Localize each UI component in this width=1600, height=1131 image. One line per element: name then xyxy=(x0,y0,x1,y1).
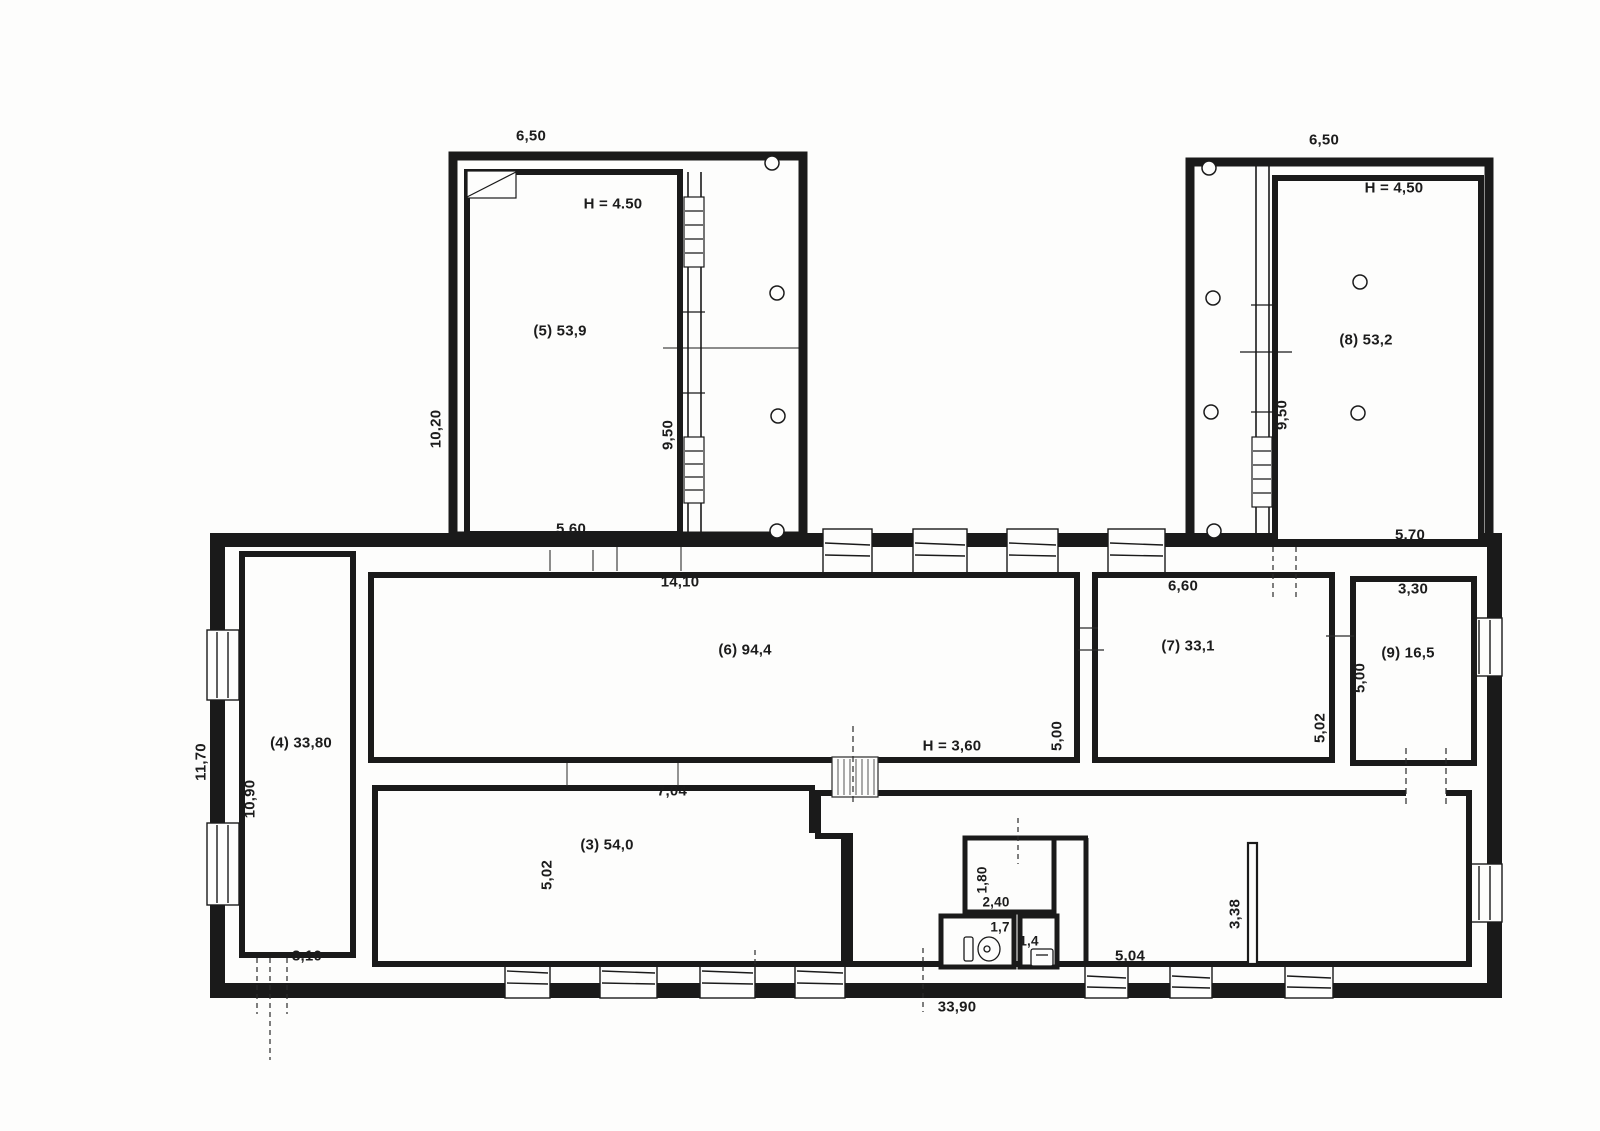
room-8-outline xyxy=(1275,178,1481,542)
dim-wing-right-inner: 9,50 xyxy=(1274,400,1291,430)
dim-room3-left: 5,02 xyxy=(539,860,556,890)
room-label-9: (9) 16,5 xyxy=(1381,645,1434,662)
room-5-outline xyxy=(467,172,680,534)
column-icons-left-wing xyxy=(765,156,785,538)
toilet-icon xyxy=(964,937,1000,961)
dim-room4-outer: 11,70 xyxy=(193,743,210,781)
plan-geometry xyxy=(0,0,1600,1131)
dim-room7-top: 6,60 xyxy=(1168,578,1198,595)
dim-wc-width: 2,40 xyxy=(982,895,1009,910)
room-label-4: (4) 33,80 xyxy=(270,735,332,752)
dim-room6-right: 5,00 xyxy=(1049,721,1066,751)
dim-wing-left-outer: 10,20 xyxy=(428,410,445,449)
room-7-outline xyxy=(1095,575,1332,760)
dim-room9-left: 5,00 xyxy=(1352,663,1369,693)
dim-room6-top: 14,10 xyxy=(661,574,700,591)
dim-bottom-right-width: 5,04 xyxy=(1115,948,1145,965)
room-label-8: (8) 53,2 xyxy=(1339,332,1392,349)
floor-plan-page: 6,50 H = 4.50 (5) 53,9 10,20 9,50 5,60 6… xyxy=(0,0,1600,1131)
dim-wing-right-bottom: 5,70 xyxy=(1395,527,1425,544)
room-label-3: (3) 54,0 xyxy=(580,837,633,854)
dim-room3-top: 7,04 xyxy=(657,783,687,800)
height-note-room6: H = 3,60 xyxy=(923,738,982,755)
sink-icon xyxy=(1031,949,1053,966)
dim-wing-left-inner: 9,50 xyxy=(660,420,677,450)
height-note-room8: H = 4,50 xyxy=(1365,180,1424,197)
dim-room7-right: 5,02 xyxy=(1312,713,1329,743)
dim-partition-wall: 3,38 xyxy=(1227,899,1244,929)
room-6-outline xyxy=(371,575,1077,760)
dim-washroom: 1,4 xyxy=(1019,934,1038,949)
dim-wing-left-bottom: 5,60 xyxy=(556,521,586,538)
dim-toilet-room: 1,7 xyxy=(990,920,1009,935)
room-label-5: (5) 53,9 xyxy=(533,323,586,340)
dim-room4-inner: 10,90 xyxy=(242,780,259,819)
dim-wing-left-top: 6,50 xyxy=(516,128,546,145)
ramp-symbol xyxy=(467,171,516,198)
partition-wall-338 xyxy=(1248,843,1257,964)
room-4-outline xyxy=(242,554,353,955)
dim-room4-bottom: 3,10 xyxy=(292,948,322,965)
dim-wing-right-top: 6,50 xyxy=(1309,132,1339,149)
room-label-6: (6) 94,4 xyxy=(718,642,771,659)
wing-left xyxy=(453,156,803,571)
room-label-7: (7) 33,1 xyxy=(1161,638,1214,655)
bottom-right-room-outline xyxy=(818,793,1469,964)
height-note-room5: H = 4.50 xyxy=(584,196,643,213)
wing-right xyxy=(1190,161,1489,542)
dim-overall-bottom: 33,90 xyxy=(938,999,977,1016)
dim-wc-depth: 1,80 xyxy=(975,866,990,893)
dim-room9-top: 3,30 xyxy=(1398,581,1428,598)
room-9-outline xyxy=(1353,579,1474,763)
room-3-outline xyxy=(375,788,844,964)
